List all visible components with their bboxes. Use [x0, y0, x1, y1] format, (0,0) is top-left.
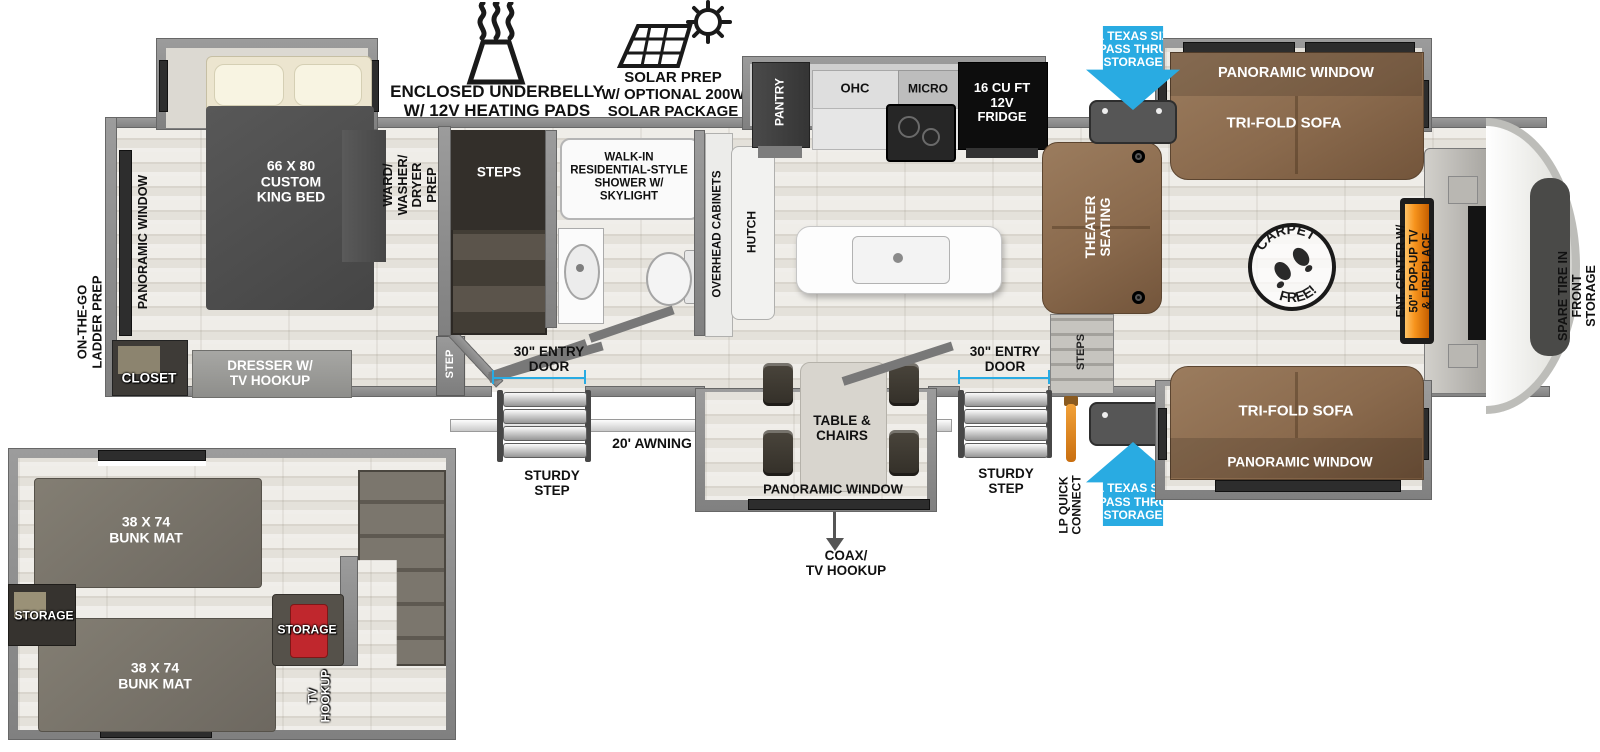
toilet: [646, 252, 692, 306]
dining-chair: [763, 363, 793, 406]
dimension-tick: [958, 370, 960, 384]
bedroom-step-label: STEP: [444, 350, 456, 379]
door1-dimension-line: [492, 377, 586, 379]
solar-prep-icon: [612, 0, 738, 74]
step-tread: [964, 392, 1048, 407]
spare-tire-label: SPARE TIRE IN FRONT STORAGE COMPARTMENT: [1556, 247, 1600, 345]
wall-stairs-bath: [545, 130, 557, 328]
loft-storage-right-label: STORAGE: [277, 623, 336, 636]
dimension-tick: [492, 370, 494, 384]
fridge-label: 16 CU FT 12V FRIDGE: [974, 81, 1030, 125]
bath-faucet: [576, 264, 584, 272]
solar-callout: SOLAR PREP W/ OPTIONAL 200W SOLAR PACKAG…: [601, 70, 744, 120]
fridge-base: [966, 148, 1038, 158]
ohc-label: OHC: [841, 82, 870, 97]
ladder-prep-label: ON-THE-GO LADDER PREP: [75, 275, 104, 368]
dresser-label: DRESSER W/ TV HOOKUP: [227, 358, 313, 388]
step-tread: [964, 426, 1048, 441]
slide-side-window: [1158, 408, 1167, 460]
living-steps-label: STEPS: [1075, 334, 1087, 370]
sofa-top-label: TRI-FOLD SOFA: [1227, 116, 1342, 133]
pantry-label: PANTRY: [773, 78, 786, 126]
overhead-cabinets-label: OVERHEAD CABINETS: [712, 170, 725, 297]
closet-label: CLOSET: [122, 370, 177, 385]
carpet-free-stamp: CARPET FREE!: [1237, 212, 1346, 321]
mid-stairs-landing: [451, 130, 547, 230]
step-tread: [964, 409, 1048, 424]
wall-bedroom-stairs: [438, 126, 451, 336]
table-chairs-label: TABLE & CHAIRS: [813, 413, 871, 443]
step-tread: [964, 443, 1048, 458]
pantry-base: [758, 146, 802, 158]
wardrobe-label: WARD/ WASHER/ DRYER PREP: [381, 155, 439, 216]
latch-dot: [1102, 108, 1108, 114]
door2-dimension-line: [958, 377, 1050, 379]
cup-holder: [1132, 291, 1145, 304]
bath-sink: [564, 244, 600, 300]
ent-cabinet-box: [1448, 176, 1478, 204]
step-tread: [503, 426, 587, 441]
loft-window-sill: [98, 461, 206, 466]
underbelly-callout: ENCLOSED UNDERBELLY W/ 12V HEATING PADS: [390, 82, 604, 120]
latch-dot: [1102, 412, 1108, 418]
sofa-top-window-label: PANORAMIC WINDOW: [1218, 65, 1374, 81]
lp-quick-connect-label: LP QUICK CONNECT: [1058, 475, 1085, 534]
step-tread: [503, 409, 587, 424]
wall-bath-kitchen: [694, 130, 705, 336]
king-bed-label: 66 X 80 CUSTOM KING BED: [257, 158, 325, 205]
wall-top-2: [372, 117, 748, 128]
wall-bottom-2: [585, 386, 705, 397]
mid-stairs-label: STEPS: [477, 164, 521, 179]
bedroom-window-label: PANORAMIC WINDOW: [136, 175, 150, 309]
loft-tv-hookup-label: TV HOOKUP: [307, 670, 334, 723]
step-tread: [503, 443, 587, 458]
island-faucet: [893, 253, 903, 263]
dimension-tick: [584, 370, 586, 384]
step-tread: [503, 392, 587, 407]
theater-seating-label: THEATER SEATING: [1083, 196, 1113, 259]
hutch-label: HUTCH: [745, 211, 758, 253]
microwave-label: MICRO: [908, 82, 948, 95]
pillow: [214, 64, 284, 106]
ent-cabinet-box: [1448, 344, 1478, 368]
loft-window-top: [98, 450, 206, 461]
ent-center-label: ENT. CENTER W/ 50" POP-UP TV & FIREPLACE: [1396, 225, 1435, 318]
bunk-top-label: 38 X 74 BUNK MAT: [109, 514, 183, 545]
slide-bottom-window: [1215, 480, 1401, 492]
entry-door2-label: 30" ENTRY DOOR: [970, 344, 1040, 374]
awning-label: 20' AWNING: [612, 436, 692, 452]
coax-antenna-icon: [833, 512, 836, 540]
bunk-bottom-label: 38 X 74 BUNK MAT: [118, 660, 192, 691]
burner: [922, 128, 940, 146]
entry-door1-label: 30" ENTRY DOOR: [514, 344, 584, 374]
rv-floorplan: ENCLOSED UNDERBELLY W/ 12V HEATING PADS …: [0, 0, 1600, 752]
shower-label: WALK-IN RESIDENTIAL-STYLE SHOWER W/ SKYL…: [570, 151, 688, 203]
loft-storage-left-label: STORAGE: [14, 609, 73, 622]
sturdy-step1-label: STURDY STEP: [524, 468, 580, 498]
sofa-seam: [1295, 96, 1298, 174]
bedroom-slide-window-left: [159, 60, 168, 112]
sofa-bottom-window-label: PANORAMIC WINDOW: [1227, 454, 1372, 469]
bedroom-panoramic-window: [119, 150, 132, 336]
latch-dot: [1156, 108, 1162, 114]
sofa-bottom-label: TRI-FOLD SOFA: [1239, 404, 1354, 421]
cooktop: [886, 104, 956, 162]
dinette-window: [748, 499, 930, 510]
cup-holder: [1132, 150, 1145, 163]
heating-pads-icon: [448, 2, 544, 86]
dimension-tick: [1048, 370, 1050, 384]
dining-chair: [763, 430, 793, 476]
pillow: [294, 64, 362, 106]
sturdy-step2-label: STURDY STEP: [978, 466, 1034, 496]
dinette-window-label: PANORAMIC WINDOW: [763, 483, 903, 498]
burner: [898, 116, 920, 138]
lp-hose: [1066, 404, 1076, 462]
coax-label: COAX/ TV HOOKUP: [806, 548, 886, 578]
dining-chair: [889, 430, 919, 476]
